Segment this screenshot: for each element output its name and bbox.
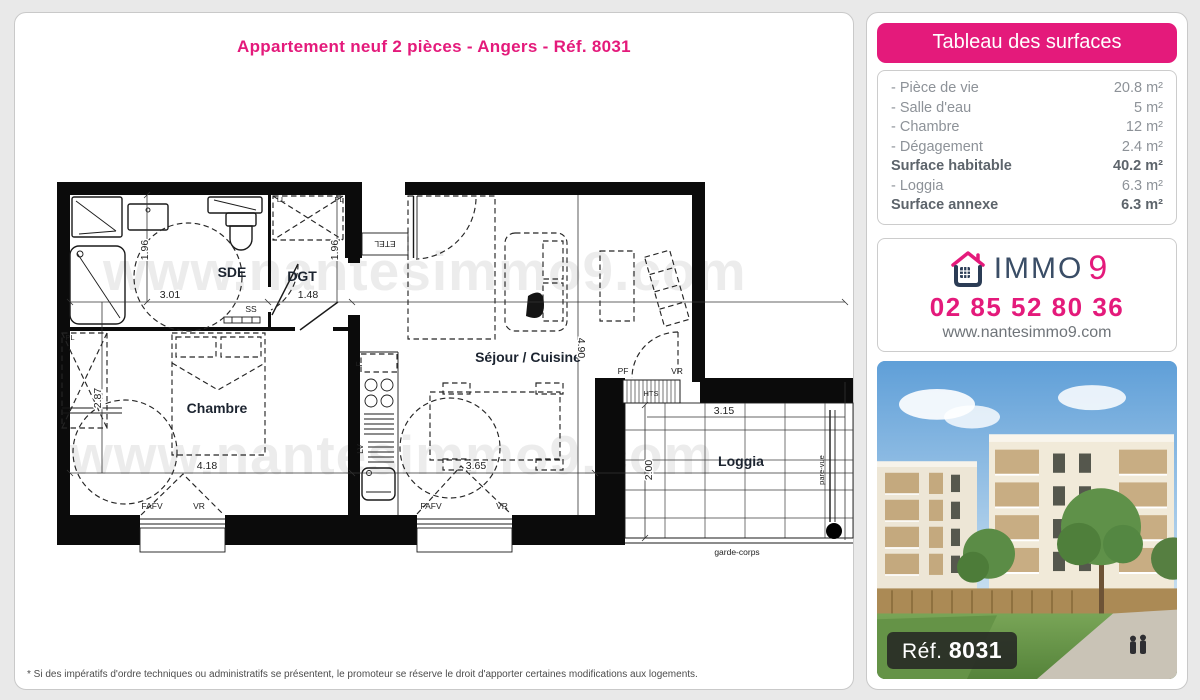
- surface-value: 2.4 m²: [1122, 138, 1163, 158]
- sidebar: Tableau des surfaces - Pièce de vie20.8 …: [866, 12, 1188, 690]
- surface-row: - Pièce de vie20.8 m²: [891, 79, 1163, 99]
- surface-value: 6.3 m²: [1121, 196, 1163, 216]
- floorplan-card: Appartement neuf 2 pièces - Angers - Réf…: [14, 12, 854, 690]
- page: Appartement neuf 2 pièces - Angers - Réf…: [0, 0, 1200, 700]
- ref-label: Réf.: [902, 640, 943, 663]
- surfaces-header: Tableau des surfaces: [877, 23, 1177, 63]
- watermark-bottom: www.nantesimmo9.com: [70, 423, 714, 487]
- surface-value: 20.8 m²: [1114, 79, 1163, 99]
- agency-phone: 02 85 52 80 36: [878, 292, 1176, 323]
- surface-label: - Pièce de vie: [891, 79, 979, 99]
- surface-row: - Loggia6.3 m²: [891, 177, 1163, 197]
- building-photo: Réf. 8031: [877, 361, 1177, 679]
- brand-9: 9: [1088, 249, 1107, 288]
- surface-row: - Dégagement2.4 m²: [891, 138, 1163, 158]
- surface-label: - Dégagement: [891, 138, 983, 158]
- surface-value: 40.2 m²: [1113, 157, 1163, 177]
- surface-row: - Salle d'eau5 m²: [891, 99, 1163, 119]
- surface-value: 6.3 m²: [1122, 177, 1163, 197]
- surface-row-total-habitable: Surface habitable40.2 m²: [891, 157, 1163, 177]
- surface-row-total-annexe: Surface annexe6.3 m²: [891, 196, 1163, 216]
- legal-footnote: * Si des impératifs d'ordre techniques o…: [27, 669, 698, 680]
- surface-label: - Loggia: [891, 177, 943, 197]
- agency-logo: IMMO9: [878, 249, 1176, 289]
- surface-label: - Chambre: [891, 118, 960, 138]
- surface-value: 12 m²: [1126, 118, 1163, 138]
- ref-badge: Réf. 8031: [887, 632, 1017, 669]
- brand-immo: IMMO: [994, 252, 1084, 286]
- surface-label: Surface habitable: [891, 157, 1012, 177]
- agency-box: IMMO9 02 85 52 80 36 www.nantesimmo9.com: [877, 238, 1177, 352]
- agency-website: www.nantesimmo9.com: [878, 324, 1176, 342]
- surface-label: Surface annexe: [891, 196, 998, 216]
- house-icon: [947, 249, 989, 289]
- page-title: Appartement neuf 2 pièces - Angers - Réf…: [15, 37, 853, 57]
- surface-label: - Salle d'eau: [891, 99, 971, 119]
- surface-value: 5 m²: [1134, 99, 1163, 119]
- watermark-top: www.nantesimmo9.com: [103, 239, 747, 303]
- ref-number: 8031: [949, 637, 1002, 663]
- surfaces-table: - Pièce de vie20.8 m² - Salle d'eau5 m² …: [877, 70, 1177, 225]
- surface-row: - Chambre12 m²: [891, 118, 1163, 138]
